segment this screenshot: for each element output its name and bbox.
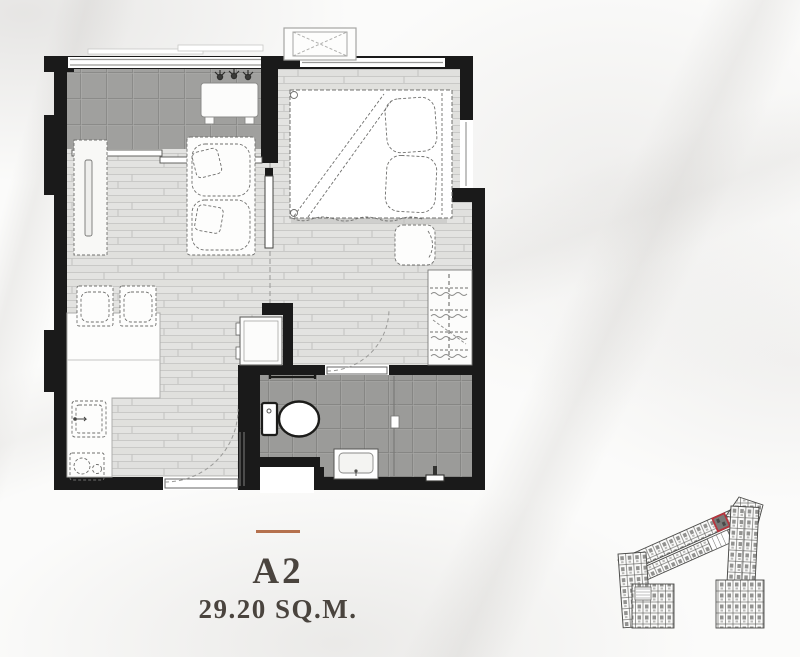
exterior-notch xyxy=(260,467,314,493)
unit-code: A2 xyxy=(158,552,398,593)
toilet xyxy=(262,402,319,437)
outdoor-bench xyxy=(201,83,258,117)
unit-caption: A2 29.20 SQ.M. xyxy=(158,530,398,626)
building-keyplan xyxy=(598,492,788,644)
keyplan-left-foot xyxy=(632,584,674,628)
fridge xyxy=(236,317,282,365)
exterior-sills xyxy=(88,45,263,54)
sofa xyxy=(187,137,255,255)
balcony-railing xyxy=(68,57,261,68)
floorplan-page: A2 29.20 SQ.M. xyxy=(0,0,800,657)
tv xyxy=(85,160,92,236)
unit-floorplan xyxy=(28,20,498,515)
keyplan-right-foot xyxy=(716,580,764,628)
bed xyxy=(290,90,452,223)
unit-area: 29.20 SQ.M. xyxy=(158,593,398,627)
tv-console xyxy=(74,140,107,255)
caption-divider xyxy=(256,530,300,533)
ac-condenser-unit xyxy=(284,28,356,60)
wardrobe xyxy=(428,270,472,365)
vanity-sink xyxy=(334,449,378,479)
bedside-stool xyxy=(395,225,435,265)
side-window xyxy=(460,120,473,188)
